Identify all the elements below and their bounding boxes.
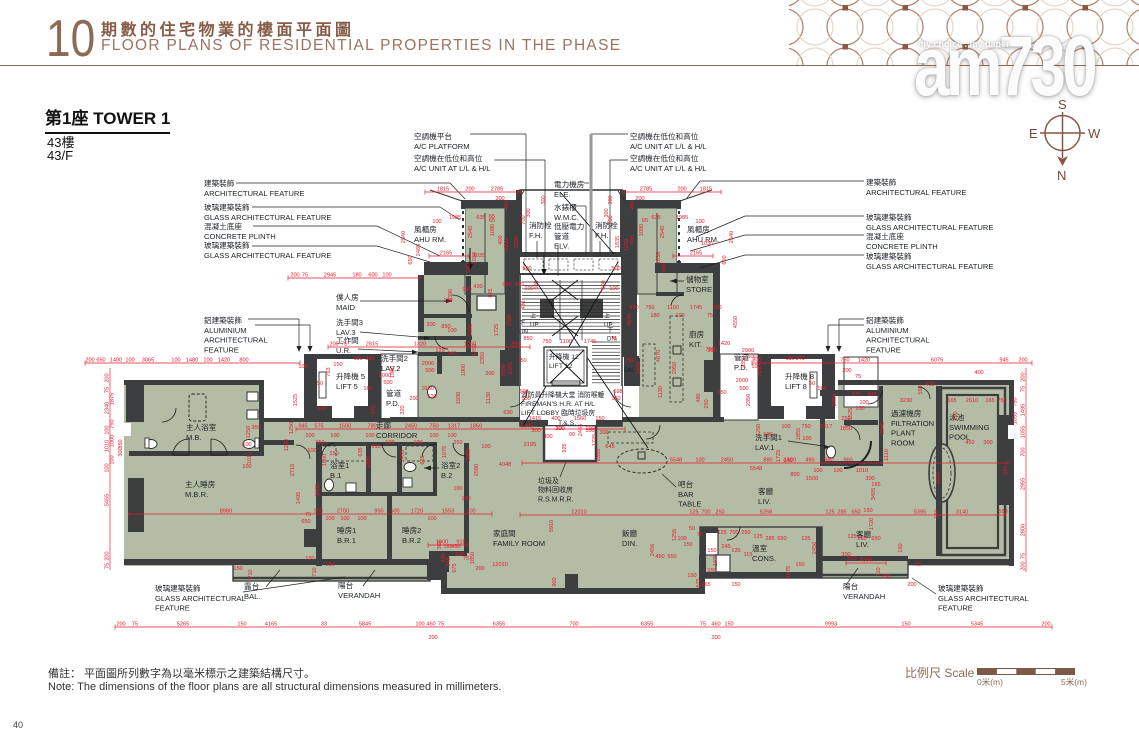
svg-text:100: 100	[357, 516, 366, 522]
svg-text:550: 550	[667, 554, 676, 560]
svg-text:1720: 1720	[869, 518, 875, 530]
svg-text:2355: 2355	[466, 449, 472, 461]
svg-text:750: 750	[645, 305, 654, 311]
svg-text:100: 100	[305, 433, 314, 439]
svg-text:700: 700	[1020, 447, 1026, 456]
svg-text:600: 600	[534, 280, 540, 289]
svg-text:2000: 2000	[422, 361, 434, 367]
svg-text:450: 450	[451, 544, 460, 550]
svg-text:710: 710	[312, 567, 318, 576]
svg-text:100: 100	[429, 433, 438, 439]
svg-text:200: 200	[485, 371, 494, 377]
svg-text:150: 150	[611, 396, 620, 402]
svg-text:100: 100	[432, 219, 441, 225]
svg-text:980: 980	[824, 457, 833, 463]
svg-text:1100: 1100	[667, 305, 679, 311]
svg-text:150: 150	[687, 573, 696, 579]
svg-text:65: 65	[489, 214, 495, 220]
svg-text:180: 180	[461, 496, 470, 502]
svg-text:2350: 2350	[741, 356, 747, 368]
svg-text:150: 150	[953, 411, 959, 420]
svg-text:1470: 1470	[508, 362, 514, 374]
svg-text:100: 100	[385, 440, 394, 446]
svg-text:100: 100	[695, 457, 704, 463]
svg-text:635: 635	[651, 215, 660, 221]
svg-text:1317: 1317	[448, 423, 460, 429]
svg-text:建築裝飾ARCHITECTURAL FEATURE: 建築裝飾ARCHITECTURAL FEATURE	[866, 177, 966, 197]
svg-text:2165: 2165	[440, 250, 452, 256]
svg-text:5345: 5345	[971, 621, 983, 627]
svg-text:2540: 2540	[401, 231, 407, 243]
svg-text:490: 490	[805, 457, 814, 463]
svg-text:5268: 5268	[760, 509, 772, 515]
svg-text:950: 950	[374, 508, 383, 514]
svg-text:150: 150	[795, 562, 804, 568]
svg-text:1850: 1850	[470, 552, 476, 564]
svg-text:1250: 1250	[624, 239, 630, 251]
svg-text:3065: 3065	[142, 357, 154, 363]
svg-text:200: 200	[465, 186, 474, 192]
svg-text:450: 450	[630, 200, 636, 209]
svg-text:350: 350	[251, 425, 260, 431]
svg-text:450: 450	[965, 440, 974, 446]
svg-text:750: 750	[705, 347, 714, 353]
svg-text:100: 100	[125, 357, 134, 363]
svg-text:575: 575	[314, 423, 323, 429]
svg-text:1855: 1855	[796, 428, 802, 440]
svg-text:200: 200	[104, 551, 110, 560]
svg-text:100: 100	[813, 468, 822, 474]
svg-text:350: 350	[315, 440, 324, 446]
svg-text:1985: 1985	[676, 215, 688, 221]
svg-text:2710: 2710	[290, 464, 296, 476]
svg-text:100: 100	[453, 486, 462, 492]
svg-text:180: 180	[353, 356, 362, 362]
svg-text:200: 200	[842, 368, 851, 374]
svg-text:飯廳DIN.: 飯廳DIN.	[622, 528, 638, 548]
svg-text:250: 250	[741, 530, 750, 536]
svg-text:消防員升降機大堂 消防喉轆FIREMAN'S: 消防員升降機大堂 消防喉轆FIREMAN'S H.R. AT H/LLIFT L…	[521, 390, 605, 417]
svg-text:1495: 1495	[1020, 404, 1026, 416]
svg-text:1480: 1480	[186, 357, 198, 363]
svg-text:100: 100	[203, 357, 212, 363]
svg-text:2540: 2540	[660, 226, 666, 238]
svg-text:650: 650	[96, 357, 105, 363]
svg-text:2826: 2826	[936, 472, 942, 484]
svg-text:630: 630	[503, 410, 512, 416]
svg-text:750: 750	[997, 398, 1006, 404]
svg-text:150: 150	[707, 548, 716, 554]
svg-text:5530: 5530	[315, 484, 321, 496]
svg-text:340: 340	[795, 356, 804, 362]
svg-text:1850: 1850	[840, 426, 852, 432]
svg-text:500: 500	[739, 386, 748, 392]
svg-text:300: 300	[531, 428, 540, 434]
svg-text:75: 75	[700, 621, 706, 627]
svg-text:125: 125	[689, 509, 698, 515]
svg-text:5265: 5265	[177, 621, 189, 627]
svg-text:1320: 1320	[414, 341, 426, 347]
svg-text:150: 150	[724, 621, 733, 627]
svg-text:480: 480	[696, 393, 702, 402]
svg-text:200: 200	[329, 341, 338, 347]
svg-text:800: 800	[790, 472, 799, 478]
svg-text:165: 165	[947, 398, 956, 404]
svg-text:200: 200	[116, 621, 125, 627]
svg-text:2435: 2435	[400, 450, 406, 462]
svg-text:400: 400	[630, 235, 636, 244]
svg-text:850: 850	[523, 336, 532, 342]
svg-text:750: 750	[109, 419, 115, 428]
svg-text:1400: 1400	[110, 357, 122, 363]
svg-text:2456: 2456	[812, 542, 818, 554]
svg-text:200: 200	[712, 305, 721, 311]
svg-text:850: 850	[511, 341, 520, 347]
svg-text:水錶櫃W.M.C.: 水錶櫃W.M.C.	[554, 202, 579, 222]
svg-text:陽台VERANDAH: 陽台VERANDAH	[843, 581, 885, 601]
svg-text:650: 650	[851, 509, 860, 515]
svg-text:風櫃房AHU RM.: 風櫃房AHU RM.	[414, 224, 446, 244]
svg-text:100: 100	[365, 433, 374, 439]
svg-text:300: 300	[608, 195, 614, 204]
svg-text:0米(m): 0米(m)	[977, 677, 1003, 687]
svg-text:1815: 1815	[437, 186, 449, 192]
svg-text:12010: 12010	[571, 509, 587, 515]
svg-text:635: 635	[476, 215, 485, 221]
svg-text:200: 200	[475, 566, 484, 572]
svg-text:945: 945	[999, 357, 1008, 363]
svg-text:1110: 1110	[884, 449, 890, 461]
svg-text:150: 150	[707, 568, 716, 574]
svg-text:50: 50	[689, 526, 695, 532]
svg-text:150: 150	[329, 451, 338, 457]
svg-text:165: 165	[985, 398, 994, 404]
svg-text:300: 300	[118, 447, 124, 456]
svg-text:200: 200	[677, 186, 686, 192]
svg-text:1080: 1080	[639, 224, 645, 236]
svg-text:645: 645	[605, 444, 614, 450]
svg-text:75: 75	[302, 272, 308, 278]
svg-text:750: 750	[625, 358, 634, 364]
svg-text:1420: 1420	[858, 357, 870, 363]
svg-text:1553: 1553	[442, 508, 454, 514]
svg-text:975: 975	[851, 392, 860, 398]
svg-text:1250: 1250	[756, 424, 762, 436]
svg-text:1800: 1800	[322, 454, 328, 466]
svg-text:1075: 1075	[786, 566, 792, 578]
svg-text:1525: 1525	[848, 408, 854, 420]
svg-text:100: 100	[609, 286, 618, 292]
svg-text:1725: 1725	[776, 450, 782, 462]
svg-text:100: 100	[695, 219, 704, 225]
svg-text:100: 100	[317, 406, 326, 412]
svg-text:650: 650	[871, 536, 880, 542]
svg-text:1815: 1815	[700, 186, 712, 192]
svg-text:玻璃建築裝飾GLASS ARCHITECTURALFEATU: 玻璃建築裝飾GLASS ARCHITECTURALFEATURE	[155, 583, 246, 613]
svg-text:12010: 12010	[492, 562, 508, 568]
svg-text:1055: 1055	[1012, 412, 1018, 424]
svg-text:1420: 1420	[718, 341, 730, 347]
svg-text:睡房1B.R.1: 睡房1B.R.1	[337, 525, 356, 545]
svg-text:500: 500	[390, 508, 399, 514]
svg-text:100: 100	[443, 298, 452, 304]
svg-text:1036: 1036	[656, 252, 662, 264]
svg-text:125: 125	[801, 536, 810, 542]
svg-text:65: 65	[642, 218, 648, 224]
svg-text:700: 700	[608, 215, 614, 224]
svg-text:8980: 8980	[220, 508, 232, 514]
svg-text:75: 75	[1020, 386, 1026, 392]
svg-text:460: 460	[426, 621, 435, 627]
svg-text:980: 980	[462, 287, 471, 293]
svg-text:75: 75	[611, 336, 617, 342]
svg-text:100: 100	[242, 442, 251, 448]
svg-text:1495: 1495	[296, 492, 302, 504]
svg-text:1560: 1560	[574, 416, 586, 422]
svg-text:100: 100	[242, 464, 251, 470]
svg-text:700: 700	[521, 215, 527, 224]
svg-text:2450: 2450	[472, 344, 478, 356]
svg-text:露台BAL.: 露台BAL.	[244, 581, 260, 601]
svg-text:5845: 5845	[359, 621, 371, 627]
svg-text:430: 430	[473, 284, 482, 290]
svg-text:698: 698	[519, 389, 528, 395]
svg-text:玻璃建築裝飾GLASS ARCHITECTURAL FEAT: 玻璃建築裝飾GLASS ARCHITECTURAL FEATURE	[204, 202, 331, 222]
svg-text:945: 945	[867, 392, 876, 398]
svg-text:200: 200	[907, 582, 916, 588]
svg-text:1250: 1250	[289, 422, 295, 434]
svg-text:33: 33	[321, 621, 327, 627]
svg-text:5米(m): 5米(m)	[1061, 677, 1087, 687]
svg-text:1080: 1080	[490, 224, 496, 236]
svg-text:1725: 1725	[494, 324, 500, 336]
svg-text:1985: 1985	[449, 215, 461, 221]
svg-text:245: 245	[721, 544, 730, 550]
svg-text:睡房2B.R.2: 睡房2B.R.2	[402, 525, 421, 545]
svg-text:450: 450	[504, 200, 510, 209]
svg-text:75: 75	[104, 387, 110, 393]
svg-text:75: 75	[1020, 553, 1026, 559]
svg-text:1075: 1075	[442, 446, 448, 458]
svg-text:150: 150	[731, 582, 740, 588]
svg-text:160: 160	[363, 386, 372, 392]
svg-text:2815: 2815	[366, 341, 378, 347]
svg-text:1317: 1317	[820, 424, 832, 430]
svg-text:陽台VERANDAH: 陽台VERANDAH	[338, 580, 380, 600]
svg-text:1835: 1835	[514, 236, 520, 248]
svg-text:空調機在低位和高位A/C UNIT AT L/L & H/: 空調機在低位和高位A/C UNIT AT L/L & H/L	[630, 153, 707, 173]
svg-text:2955: 2955	[1020, 478, 1026, 490]
svg-text:75: 75	[707, 313, 713, 319]
svg-text:6355: 6355	[493, 621, 505, 627]
svg-text:925: 925	[562, 443, 568, 452]
svg-text:2350: 2350	[480, 352, 486, 364]
svg-text:50: 50	[809, 381, 815, 387]
svg-text:750: 750	[542, 339, 551, 345]
svg-text:空調機平台A/C PLATFORM: 空調機平台A/C PLATFORM	[414, 131, 470, 151]
svg-text:200: 200	[1041, 621, 1050, 627]
svg-text:鋁建築裝飾ALUMINIUMARCHITECTURALFEA: 鋁建築裝飾ALUMINIUMARCHITECTURALFEATURE	[866, 315, 930, 354]
svg-text:125: 125	[825, 509, 834, 515]
svg-text:763: 763	[326, 367, 332, 376]
svg-text:玻璃建築裝飾GLASS ARCHITECTURAL FEAT: 玻璃建築裝飾GLASS ARCHITECTURAL FEATURE	[866, 212, 993, 232]
svg-text:100: 100	[447, 433, 456, 439]
svg-text:320: 320	[400, 405, 406, 414]
svg-text:空調機在低位和高位A/C UNIT AT L/L & H/: 空調機在低位和高位A/C UNIT AT L/L & H/L	[630, 131, 707, 151]
svg-text:150: 150	[881, 574, 890, 580]
svg-text:100: 100	[585, 428, 594, 434]
svg-text:玻璃建築裝飾GLASS ARCHITECTURALFEATU: 玻璃建築裝飾GLASS ARCHITECTURALFEATURE	[938, 583, 1029, 613]
svg-text:600: 600	[502, 282, 511, 288]
svg-text:2456: 2456	[650, 544, 656, 556]
svg-text:460: 460	[711, 621, 720, 627]
svg-text:1075: 1075	[713, 554, 719, 566]
svg-text:1100: 1100	[560, 339, 572, 345]
svg-text:285: 285	[857, 536, 866, 542]
svg-text:150: 150	[863, 508, 872, 514]
svg-text:1250: 1250	[246, 426, 252, 438]
svg-text:150: 150	[898, 543, 904, 552]
svg-text:100: 100	[307, 448, 316, 454]
svg-text:700: 700	[701, 509, 710, 515]
svg-text:550: 550	[998, 509, 1007, 515]
svg-text:2700: 2700	[337, 508, 349, 514]
svg-text:2455: 2455	[578, 424, 584, 436]
svg-text:650: 650	[408, 255, 414, 264]
svg-text:6355: 6355	[641, 621, 653, 627]
svg-text:1525: 1525	[293, 394, 299, 406]
svg-text:5395: 5395	[914, 509, 926, 515]
svg-text:2465: 2465	[416, 244, 422, 256]
svg-text:鋁建築裝飾ALUMINIUMARCHITECTURALFEA: 鋁建築裝飾ALUMINIUMARCHITECTURALFEATURE	[204, 315, 268, 354]
svg-text:100: 100	[833, 468, 842, 474]
svg-text:4870: 4870	[656, 350, 662, 362]
svg-text:900: 900	[552, 577, 558, 586]
svg-text:340: 340	[365, 356, 374, 362]
svg-text:100: 100	[763, 432, 772, 438]
svg-text:750: 750	[801, 424, 810, 430]
svg-text:100: 100	[171, 357, 180, 363]
svg-text:100: 100	[466, 508, 475, 514]
svg-text:4870: 4870	[627, 314, 633, 326]
svg-text:廚房KIT.: 廚房KIT.	[689, 329, 704, 349]
svg-text:150: 150	[901, 621, 910, 627]
svg-text:2540: 2540	[729, 231, 735, 243]
svg-text:100: 100	[675, 313, 684, 319]
svg-text:300: 300	[426, 322, 435, 328]
svg-text:1010: 1010	[856, 468, 868, 474]
svg-text:180: 180	[352, 272, 361, 278]
svg-text:1720: 1720	[411, 508, 423, 514]
svg-text:75: 75	[438, 621, 444, 627]
svg-text:1055: 1055	[1020, 426, 1026, 438]
svg-text:洗手間3LAV.3: 洗手間3LAV.3	[336, 317, 363, 337]
svg-text:2350: 2350	[746, 394, 752, 406]
svg-text:750: 750	[1012, 397, 1018, 406]
svg-text:400: 400	[551, 416, 560, 422]
svg-text:1930: 1930	[456, 392, 462, 404]
svg-text:1745: 1745	[584, 339, 596, 345]
svg-text:管道P.D.: 管道P.D.	[386, 388, 402, 408]
svg-text:200: 200	[635, 196, 644, 202]
svg-text:工作間U.R.: 工作間U.R.	[336, 335, 359, 355]
svg-text:698: 698	[613, 389, 622, 395]
svg-text:500: 500	[425, 368, 434, 374]
svg-text:1000: 1000	[109, 435, 115, 447]
svg-text:200: 200	[409, 396, 418, 402]
svg-text:750: 750	[840, 357, 849, 363]
svg-text:200: 200	[1020, 372, 1026, 381]
svg-text:建築裝飾ARCHITECTURAL FEATURE: 建築裝飾ARCHITECTURAL FEATURE	[204, 178, 304, 198]
svg-text:1900: 1900	[461, 364, 467, 376]
svg-text:150: 150	[1003, 465, 1009, 474]
svg-text:285: 285	[765, 536, 774, 542]
svg-text:675: 675	[452, 563, 458, 572]
svg-text:2785: 2785	[640, 186, 652, 192]
svg-text:700: 700	[569, 621, 578, 627]
svg-text:300: 300	[983, 440, 992, 446]
svg-text:2450: 2450	[405, 423, 417, 429]
svg-text:200: 200	[711, 635, 720, 641]
svg-text:100: 100	[109, 455, 115, 464]
svg-text:1035: 1035	[473, 253, 485, 259]
svg-text:1250: 1250	[504, 239, 510, 251]
svg-text:650: 650	[301, 519, 310, 525]
svg-text:1900: 1900	[390, 366, 396, 378]
svg-text:180: 180	[650, 313, 659, 319]
svg-text:100: 100	[413, 440, 422, 446]
svg-text:750: 750	[429, 423, 438, 429]
svg-text:635: 635	[420, 455, 426, 464]
svg-text:945: 945	[298, 423, 307, 429]
svg-text:1130: 1130	[486, 392, 492, 404]
svg-text:90: 90	[569, 432, 575, 438]
svg-text:1130: 1130	[658, 386, 664, 398]
svg-text:2945: 2945	[324, 272, 336, 278]
svg-text:1850: 1850	[470, 423, 482, 429]
svg-text:150: 150	[233, 566, 242, 572]
svg-text:2950: 2950	[672, 362, 678, 374]
svg-text:180: 180	[785, 356, 794, 362]
svg-text:100: 100	[447, 328, 456, 334]
svg-text:150: 150	[521, 396, 530, 402]
svg-text:150: 150	[934, 509, 940, 518]
svg-text:800: 800	[239, 357, 248, 363]
svg-text:763: 763	[758, 367, 764, 376]
svg-text:2785: 2785	[491, 186, 503, 192]
svg-text:645: 645	[783, 458, 792, 464]
svg-text:350: 350	[118, 439, 124, 448]
svg-text:300: 300	[541, 195, 547, 204]
svg-text:1745: 1745	[690, 305, 702, 311]
svg-text:1835: 1835	[615, 236, 621, 248]
svg-text:150: 150	[683, 542, 692, 548]
svg-text:4550: 4550	[733, 316, 739, 328]
svg-text:125: 125	[847, 534, 856, 540]
svg-text:混凝土底座CONCRETE PLINTH: 混凝土底座CONCRETE PLINTH	[866, 231, 938, 251]
svg-text:265: 265	[701, 582, 710, 588]
svg-text:150: 150	[305, 556, 314, 562]
svg-text:75: 75	[341, 341, 347, 347]
svg-text:75: 75	[855, 374, 861, 380]
svg-text:100: 100	[340, 516, 349, 522]
svg-text:880: 880	[763, 457, 772, 463]
svg-text:250: 250	[715, 509, 724, 515]
svg-text:1725: 1725	[592, 434, 598, 446]
svg-text:165: 165	[871, 482, 880, 488]
svg-text:500: 500	[383, 380, 392, 386]
svg-text:100: 100	[781, 424, 790, 430]
